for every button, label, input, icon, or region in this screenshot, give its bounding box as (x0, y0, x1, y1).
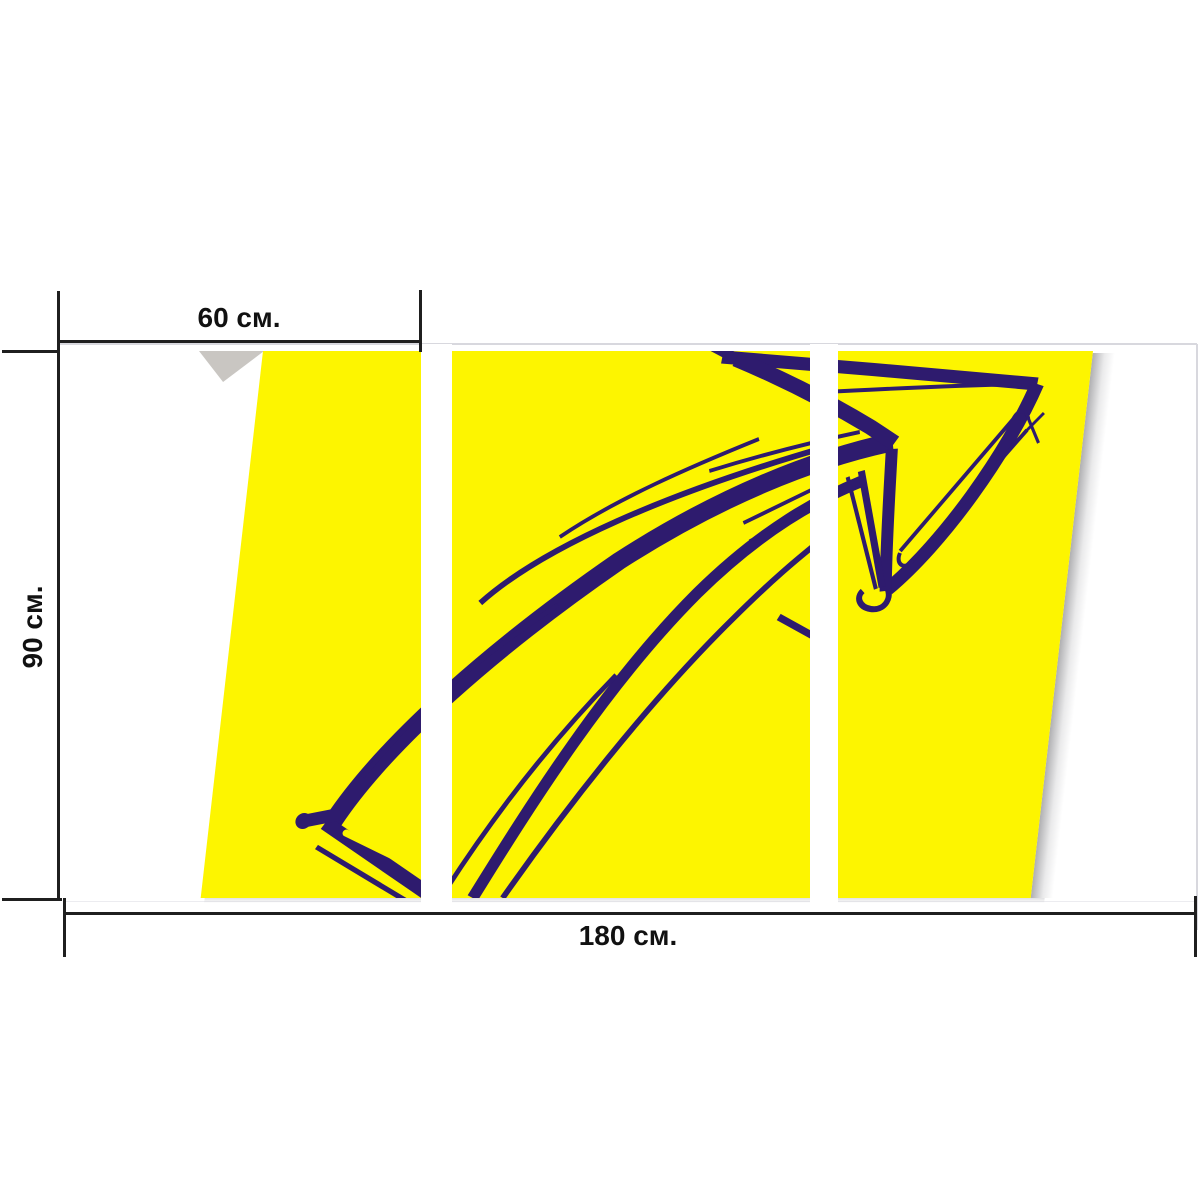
artwork-canvas (201, 351, 1093, 898)
dimension-tick-180-right (1194, 896, 1197, 957)
panel-width-label: 60 см. (58, 302, 420, 334)
dimension-tick-90-bottom (2, 898, 62, 901)
product-mockup: 60 см. 90 см. 180 см. (0, 0, 1200, 1200)
dimension-tick-90-top (2, 350, 60, 353)
folded-corner-shadow (199, 351, 264, 382)
dimension-line-vertical-left (57, 291, 60, 900)
artwork-bottom-shadow (204, 898, 1045, 903)
height-label: 90 см. (17, 547, 49, 707)
picture-area-top-edge (57, 343, 1197, 345)
dimension-tick-180-left (63, 898, 66, 957)
total-width-label: 180 см. (478, 920, 778, 952)
dimension-line-180 (63, 912, 1197, 915)
panel-gap-1 (421, 344, 452, 904)
panel-gap-2 (810, 344, 838, 904)
dimension-line-60 (57, 340, 421, 343)
triptych-artwork (201, 351, 1093, 898)
arrow-sketch-icon (201, 351, 1093, 898)
picture-area-right-edge (1196, 344, 1198, 930)
